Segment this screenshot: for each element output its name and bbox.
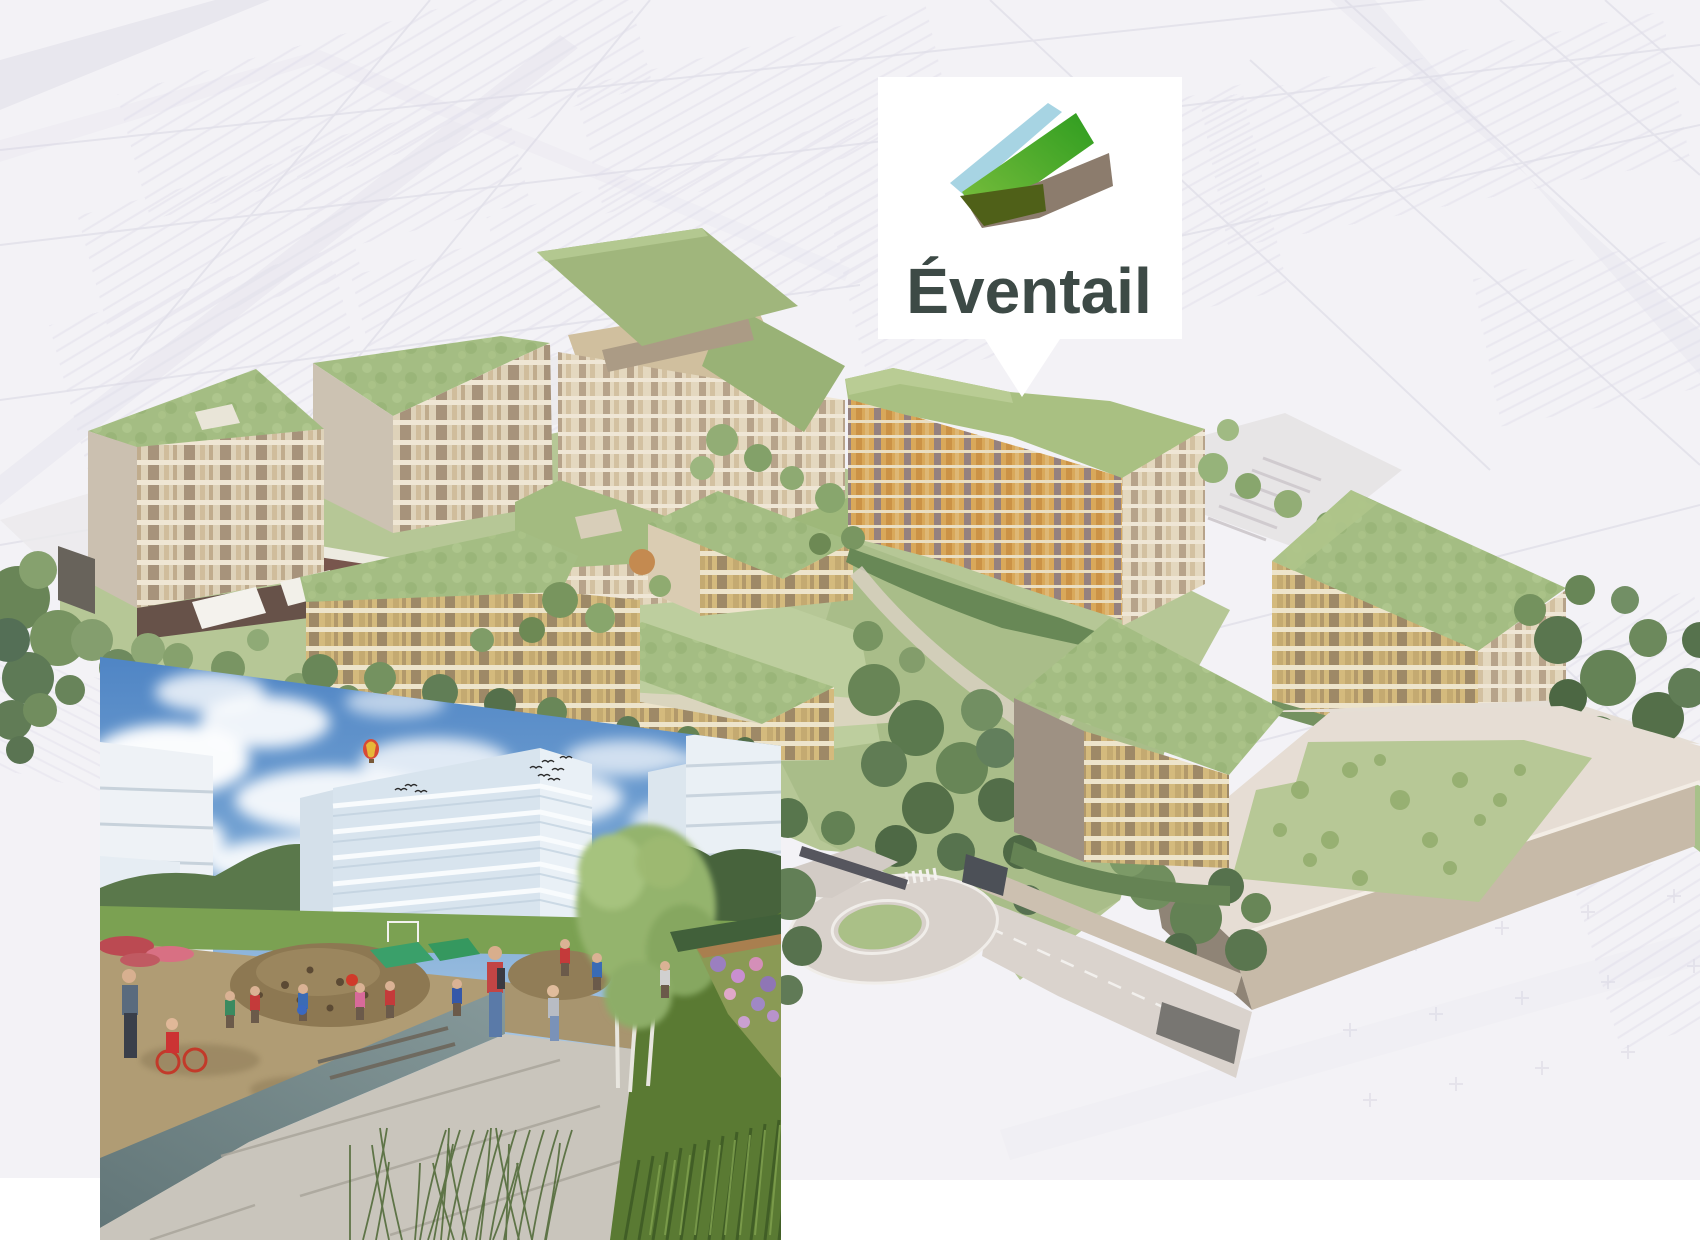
svg-text:Éventail: Éventail	[906, 255, 1151, 327]
